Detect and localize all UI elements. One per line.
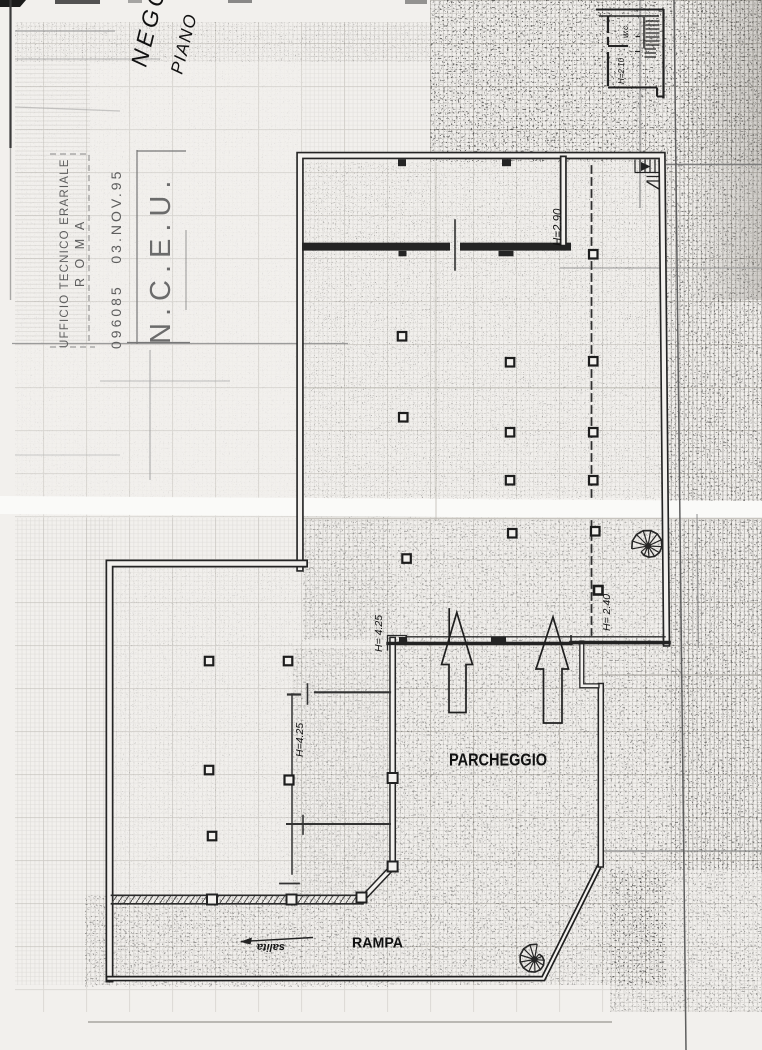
svg-text:H= 2.40: H= 2.40 [601, 594, 613, 631]
svg-text:H= 4.25: H= 4.25 [373, 615, 385, 652]
svg-text:N.C.E.U.: N.C.E.U. [145, 174, 177, 344]
svg-text:salita: salita [257, 941, 285, 953]
svg-text:R O M A: R O M A [73, 219, 87, 287]
svg-text:w.c.: w.c. [620, 23, 630, 38]
svg-text:UFFICIO TECNICO ERARIALE: UFFICIO TECNICO ERARIALE [59, 158, 71, 348]
svg-text:PARCHEGGIO: PARCHEGGIO [449, 750, 547, 770]
svg-text:H=2.10: H=2.10 [617, 57, 626, 84]
svg-text:RAMPA: RAMPA [352, 935, 403, 952]
svg-text:H=2.90: H=2.90 [553, 208, 565, 246]
svg-text:H=4.25: H=4.25 [294, 723, 306, 757]
svg-text:096085 03.NOV.95: 096085 03.NOV.95 [108, 169, 124, 349]
